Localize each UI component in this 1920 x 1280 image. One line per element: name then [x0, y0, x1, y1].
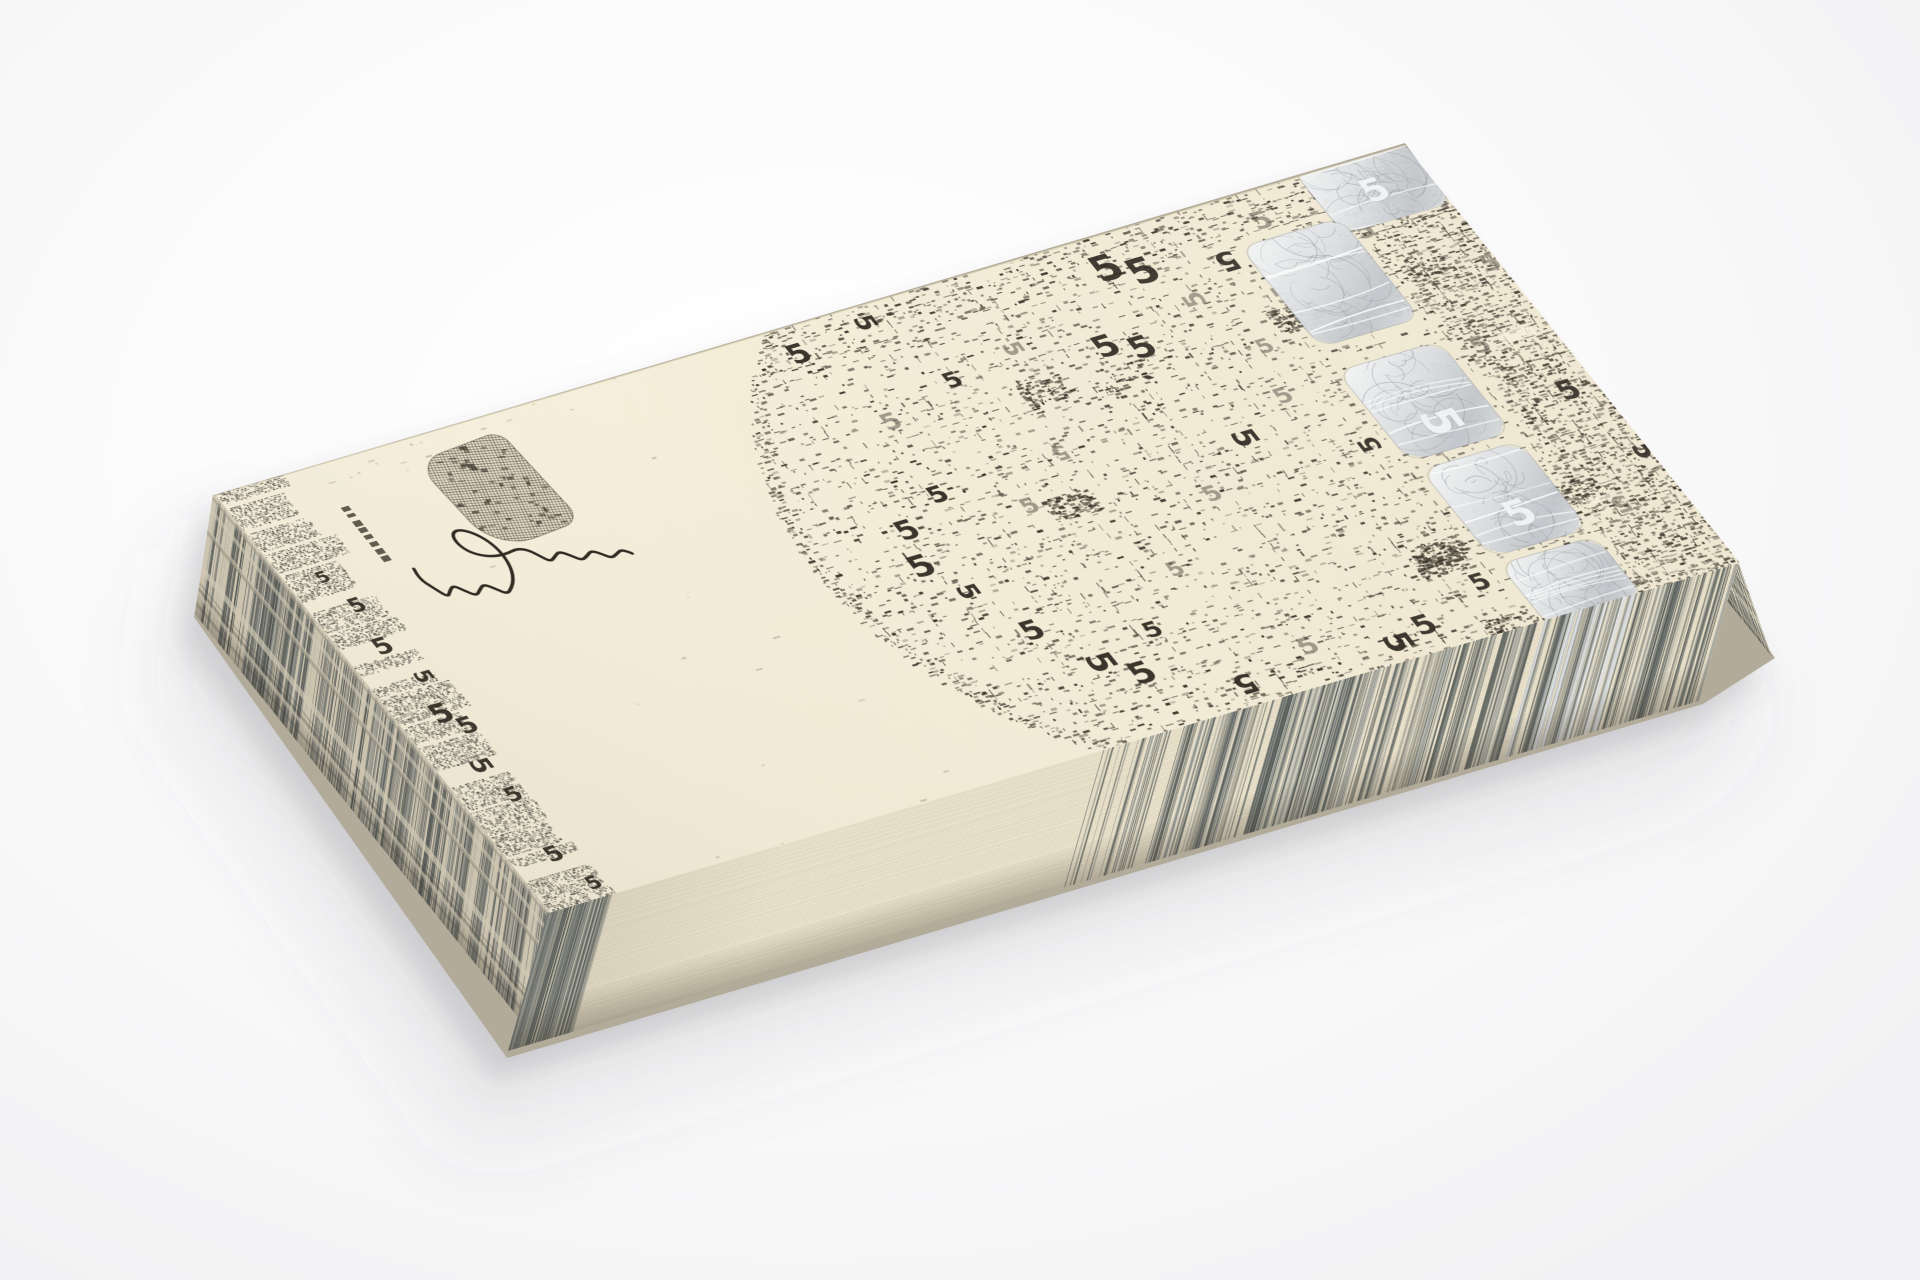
product-photo — [0, 0, 1920, 1280]
